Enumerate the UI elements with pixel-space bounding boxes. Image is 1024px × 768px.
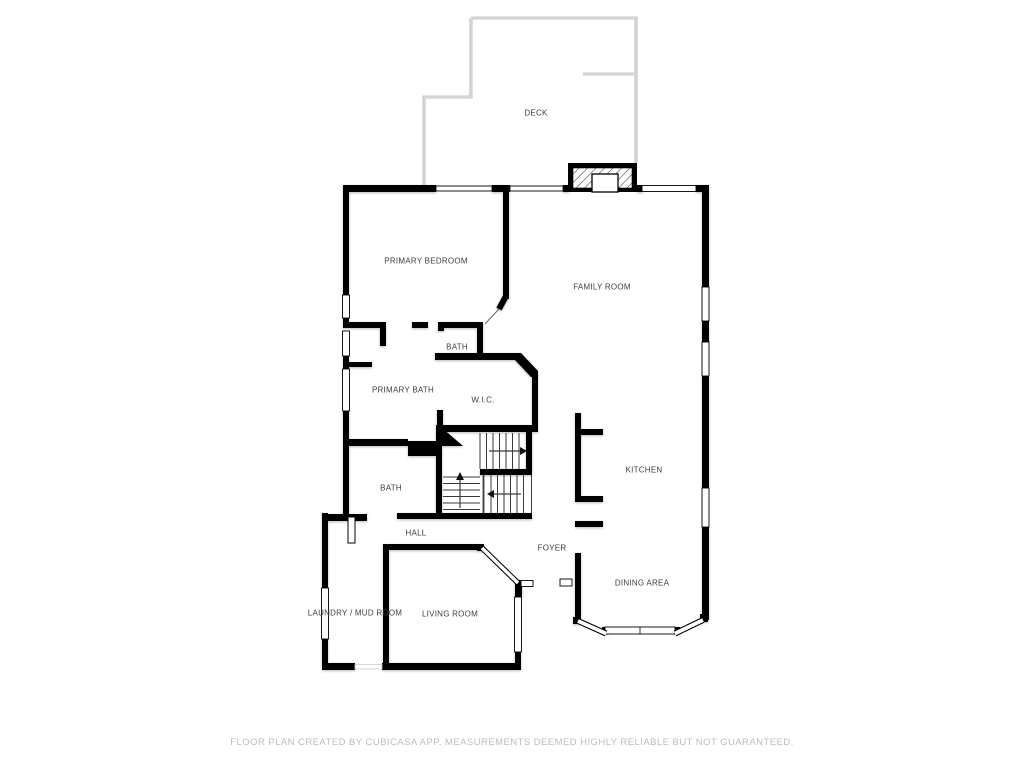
room-label-bath-wc: BATH	[446, 343, 468, 352]
room-label-hall: HALL	[405, 529, 426, 538]
room-label-primary-bedroom: PRIMARY BEDROOM	[384, 257, 467, 266]
room-label-kitchen: KITCHEN	[626, 466, 663, 475]
room-label-deck: DECK	[524, 109, 547, 118]
room-label-bath: BATH	[380, 484, 402, 493]
deck-outline	[424, 18, 636, 185]
stairs-middle-flight	[443, 477, 480, 510]
room-label-family-room: FAMILY ROOM	[573, 283, 631, 292]
room-label-primary-bath: PRIMARY BATH	[372, 386, 434, 395]
room-label-living-room: LIVING ROOM	[422, 610, 478, 619]
floor-plan-disclaimer: FLOOR PLAN CREATED BY CUBICASA APP. MEAS…	[0, 737, 1024, 748]
room-label-foyer: FOYER	[538, 544, 567, 553]
fireplace-symbol	[568, 163, 637, 192]
floor-plan-drawing	[0, 0, 1024, 768]
stairs-direction-arrow-right	[489, 447, 527, 455]
room-label-wic: W.I.C.	[471, 396, 494, 405]
floor-plan-page: DECK PRIMARY BEDROOM FAMILY ROOM BATH PR…	[0, 0, 1024, 768]
room-label-dining-area: DINING AREA	[615, 579, 669, 588]
room-label-laundry-mud-room: LAUNDRY / MUD ROOM	[308, 609, 402, 618]
